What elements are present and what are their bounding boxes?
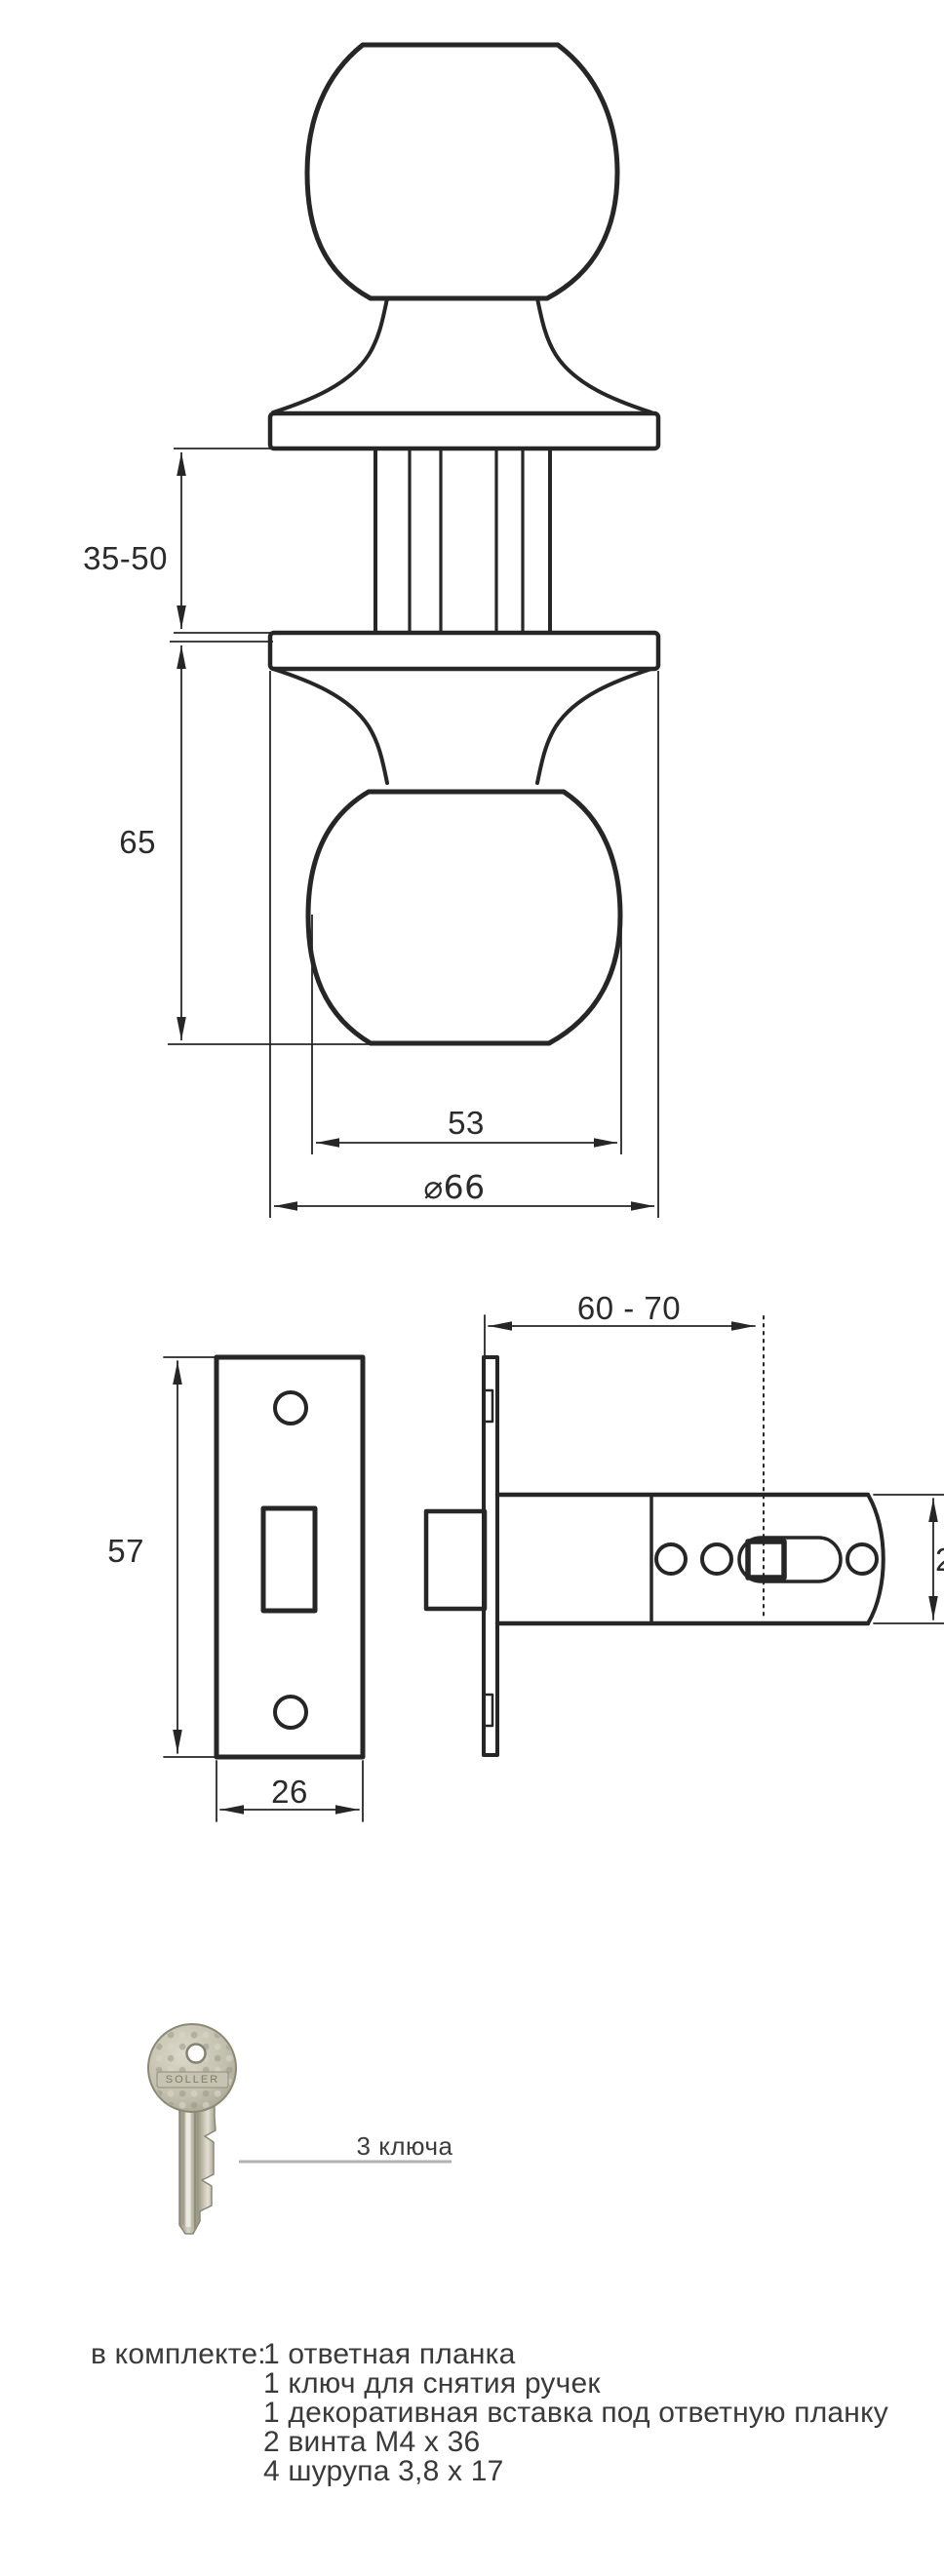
rose-inner — [270, 633, 658, 669]
spindle-square-hole — [748, 1542, 784, 1578]
package-item: 1 ответная планка — [263, 2340, 516, 2369]
dim-plate-height-label: 57 — [37, 1535, 144, 1567]
spindle — [375, 449, 550, 633]
dim-knob-width-label: 53 — [408, 1107, 525, 1139]
dim-body-diameter-partial-label: 2 — [935, 1543, 944, 1576]
key-bow-hole — [187, 2045, 206, 2063]
key-photo — [148, 2024, 236, 2234]
latch-bolt — [426, 1511, 485, 1609]
package-item: 1 ключ для снятия ручек — [263, 2369, 601, 2399]
screw-hole-bottom — [275, 1697, 306, 1728]
screw-hole-top — [275, 1392, 306, 1424]
package-item: 4 шурупа 3,8 х 17 — [263, 2457, 504, 2486]
knob-front-drawing — [270, 45, 658, 1043]
knob-dimensions — [168, 449, 658, 1218]
latch-drawing — [426, 1315, 944, 1755]
rose-outer — [270, 413, 658, 449]
strike-plate-drawing — [164, 1357, 363, 1821]
dim-knob-projection-label: 65 — [39, 826, 156, 858]
package-item: 2 винта М4 х 36 — [263, 2428, 480, 2457]
technical-drawing — [0, 0, 944, 2576]
key-count-label: 3 ключа — [336, 2133, 473, 2159]
package-label: в комплекте: — [91, 2340, 266, 2369]
dim-grip-range-label: 35-50 — [39, 542, 168, 574]
knob-ball-outer — [307, 45, 617, 298]
key-shaft — [179, 2098, 216, 2234]
package-item: 1 декоративная вставка под ответную план… — [263, 2399, 888, 2428]
dim-plate-width-label: 26 — [231, 1776, 348, 1808]
latch-cutout — [263, 1508, 315, 1611]
dim-backset-label: 60 - 70 — [531, 1292, 727, 1324]
key-brand-label: SOLLER — [154, 2075, 231, 2086]
knob-ball-inner — [308, 792, 620, 1043]
catalog-sheet: 35-50 65 53 ⌀66 57 26 60 - 70 2 SOLLER 3… — [0, 0, 944, 2576]
dim-rose-diameter-label: ⌀66 — [396, 1171, 513, 1203]
